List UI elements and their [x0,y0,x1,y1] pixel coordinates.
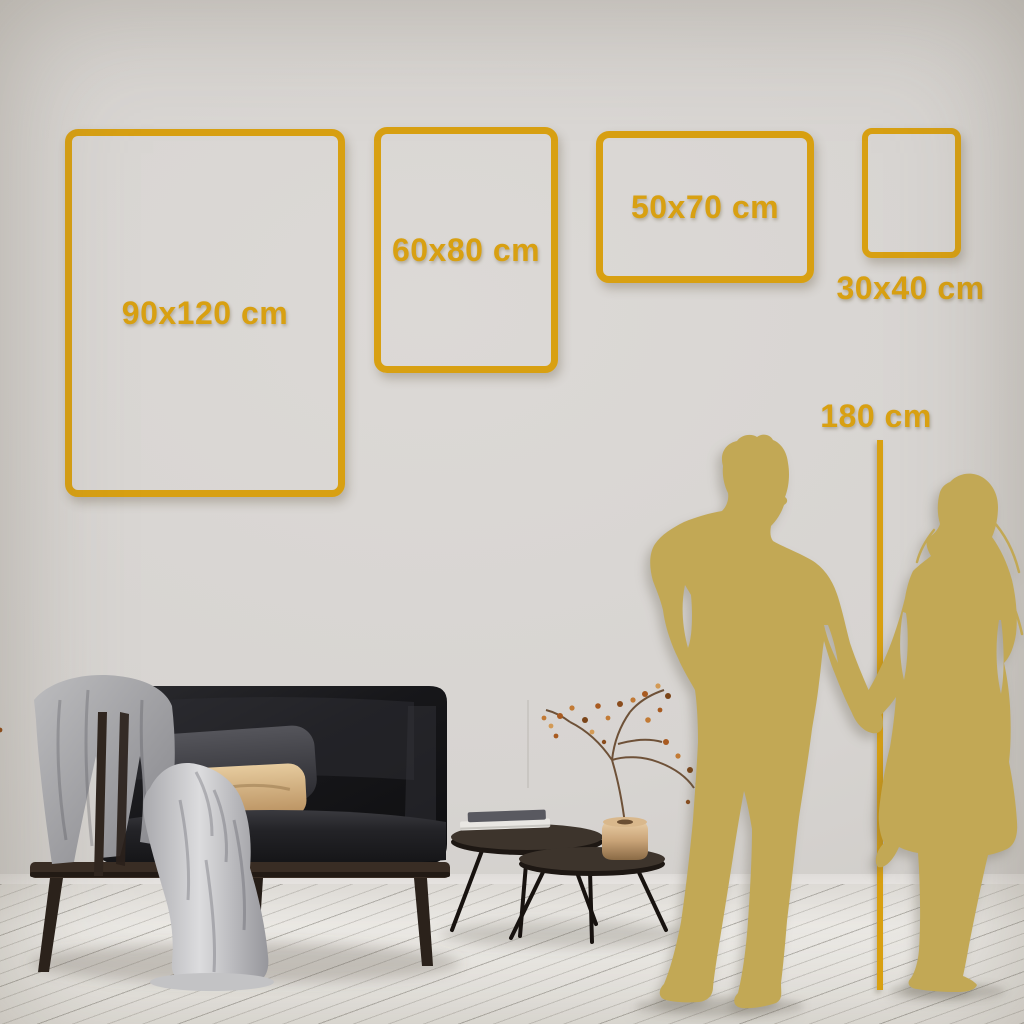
couple-silhouette [0,0,1024,1024]
man-silhouette [650,435,883,1009]
poster-size-comparison-scene: 90x120 cm 60x80 cm 50x70 cm 30x40 cm 180… [0,0,1024,1024]
woman-silhouette [857,474,1017,992]
